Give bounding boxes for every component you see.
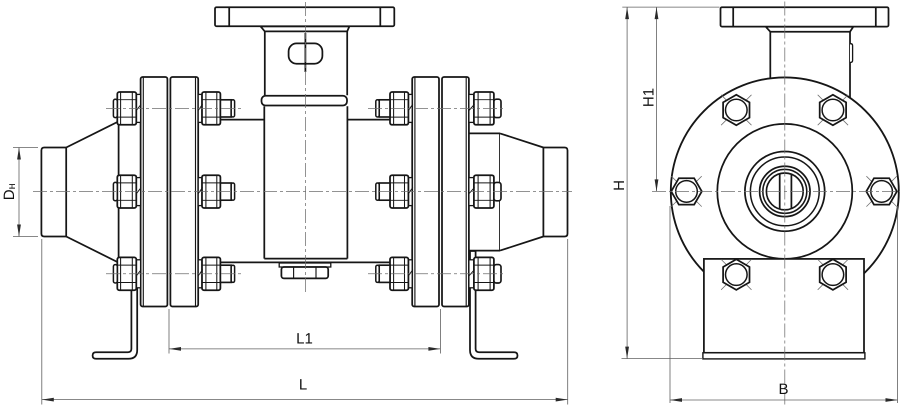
- svg-text:B: B: [778, 381, 788, 398]
- svg-text:L: L: [299, 376, 307, 393]
- svg-text:Dн: Dн: [1, 183, 18, 200]
- svg-text:H: H: [611, 180, 628, 191]
- svg-text:H1: H1: [641, 88, 658, 107]
- svg-text:L1: L1: [296, 331, 313, 348]
